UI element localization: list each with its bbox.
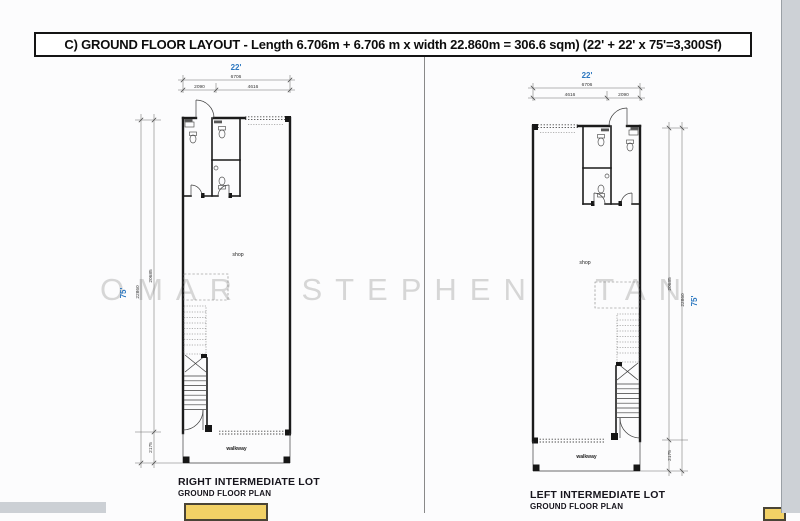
- dim-segment-label: 2090: [194, 84, 205, 90]
- door-jamb: [611, 433, 618, 440]
- walkway-label: walkway: [225, 446, 247, 452]
- sink: [629, 130, 638, 135]
- wc: [219, 177, 225, 185]
- walkway-post: [634, 465, 641, 472]
- stair-nib: [616, 362, 622, 366]
- dim-total-width-label: 6706: [582, 82, 593, 88]
- shop-label: shop: [579, 260, 590, 266]
- height-feet-label: 75': [119, 288, 128, 299]
- entrance-door-arc: [196, 100, 214, 118]
- fixture-label: [631, 127, 639, 130]
- wc: [627, 143, 633, 151]
- dim-total-height-label: 22860: [680, 293, 686, 307]
- basin: [605, 174, 609, 178]
- panel-divider: [424, 53, 425, 513]
- dashed-provision: [595, 282, 639, 308]
- toilet-door-arc: [191, 185, 202, 196]
- toilet-door-arc: [594, 193, 605, 204]
- stair-upper-flight: [184, 306, 206, 354]
- floor-plan-left-intermediate-lot: 67064616209022'2286020685217575'shopwalk…: [505, 64, 725, 478]
- walkway-post: [284, 457, 291, 464]
- wc-tank: [598, 135, 605, 139]
- entrance-door-arc: [609, 108, 627, 126]
- plan-subtitle: GROUND FLOOR PLAN: [530, 502, 665, 511]
- dim-segment-label: 4616: [565, 92, 576, 98]
- shop-label: shop: [232, 252, 243, 258]
- section-header: C) GROUND FLOOR LAYOUT - Length 6.706m +…: [34, 32, 752, 57]
- sink: [185, 122, 194, 127]
- dim-walkway-label: 2175: [667, 450, 673, 461]
- basin: [214, 166, 218, 170]
- wc: [219, 130, 225, 138]
- watermark-word: STEPHEN: [301, 272, 538, 308]
- rear-door-arc: [620, 418, 640, 438]
- scanned-floor-plan-page: { "header": { "title": "C) GROUND FLOOR …: [0, 0, 800, 513]
- stair-upper-flight: [617, 314, 639, 362]
- dashed-provision: [184, 274, 228, 300]
- walkway-post: [533, 465, 540, 472]
- plan-subtitle: GROUND FLOOR PLAN: [178, 489, 320, 498]
- lot-title: LEFT INTERMEDIATE LOT: [530, 489, 665, 501]
- height-feet-label: 75': [690, 296, 699, 307]
- lot-title: RIGHT INTERMEDIATE LOT: [178, 476, 320, 488]
- dim-walkway-label: 2175: [148, 442, 154, 453]
- page-right-edge: [781, 0, 800, 513]
- stair-nib: [201, 354, 207, 358]
- wc: [598, 138, 604, 146]
- toilet-door-arc: [218, 185, 229, 196]
- toilet-door-arc: [621, 193, 632, 204]
- fixture-label: [601, 129, 609, 132]
- width-feet-label: 22': [582, 71, 593, 80]
- dim-inner-height-label: 20685: [148, 269, 154, 283]
- fixture-label: [214, 121, 222, 124]
- dim-inner-height-label: 20685: [667, 277, 673, 291]
- wc-tank: [219, 127, 226, 131]
- door-jamb: [205, 425, 212, 432]
- caption-right-intermediate-lot: RIGHT INTERMEDIATE LOT GROUND FLOOR PLAN: [178, 476, 320, 498]
- page-bottom-edge: [0, 502, 106, 513]
- walkway-post: [183, 457, 190, 464]
- caption-left-intermediate-lot: LEFT INTERMEDIATE LOT GROUND FLOOR PLAN: [530, 489, 665, 511]
- fixture-label: [185, 119, 193, 122]
- walkway-label: walkway: [575, 454, 597, 460]
- width-feet-label: 22': [231, 63, 242, 72]
- dim-segment-label: 4616: [248, 84, 259, 90]
- rear-door-arc: [183, 410, 203, 430]
- floor-plan-right-intermediate-lot: 67062090461622'2286020685217575'shopwalk…: [105, 56, 325, 470]
- dim-total-height-label: 22860: [135, 285, 141, 299]
- section-title: C) GROUND FLOOR LAYOUT - Length 6.706m +…: [64, 37, 721, 52]
- dim-segment-label: 2090: [618, 92, 629, 98]
- wc: [190, 135, 196, 143]
- dim-total-width-label: 6706: [231, 74, 242, 80]
- highlight-box: [184, 503, 268, 521]
- wc: [598, 185, 604, 193]
